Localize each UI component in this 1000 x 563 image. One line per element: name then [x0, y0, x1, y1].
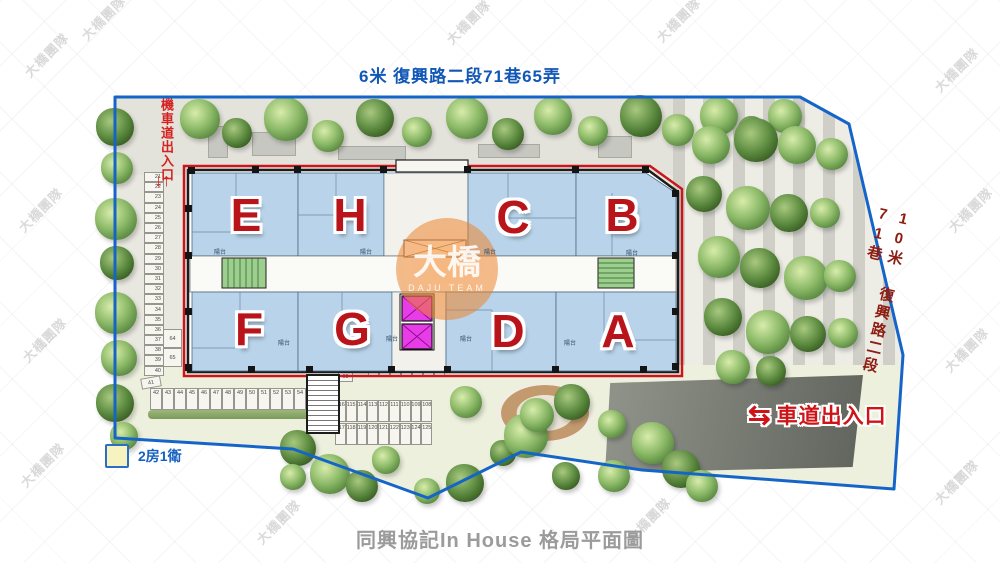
site-boundary-line — [115, 97, 903, 498]
unit-label-H: H — [318, 188, 382, 242]
unit-label-B: B — [590, 188, 654, 242]
vehicle-entrance: ⇆ 車道出入口 — [748, 400, 887, 430]
balcony-label: 陽台 — [564, 338, 576, 347]
page-title: 同興協記In House 格局平面圖 — [0, 524, 1000, 553]
unit-label-A: A — [586, 304, 650, 358]
logo-text: 大橋 — [413, 245, 481, 281]
unit-label-G: G — [320, 302, 384, 356]
legend-label: 2房1衛 — [138, 446, 182, 466]
balcony-label: 陽台 — [360, 247, 372, 256]
unit-label-C: C — [481, 190, 545, 244]
legend-swatch — [105, 444, 129, 468]
balcony-label: 陽台 — [484, 247, 496, 256]
balcony-label: 陽台 — [460, 334, 472, 343]
unit-label-D: D — [476, 304, 540, 358]
legend: 2房1衛 — [105, 444, 182, 468]
road-label-top: 6米 復興路二段71巷65弄 — [180, 62, 740, 87]
unit-label-F: F — [217, 302, 281, 356]
balcony-label: 陽台 — [386, 334, 398, 343]
motorcycle-entrance-arrows-icon: ↓↑ — [154, 170, 170, 191]
balcony-label: 陽台 — [626, 248, 638, 257]
vehicle-entrance-label: 車道出入口 — [777, 400, 887, 430]
logo-subtext: DAJU TEAM — [408, 283, 486, 293]
unit-label-E: E — [214, 188, 278, 242]
balcony-label: 陽台 — [214, 247, 226, 256]
site-plan: 大橋團隊 大橋團隊 大橋團隊 大橋團隊 大橋團隊 大橋團隊 大橋團隊 大橋團隊 … — [0, 0, 1000, 563]
vehicle-entrance-arrows-icon: ⇆ — [748, 405, 771, 425]
